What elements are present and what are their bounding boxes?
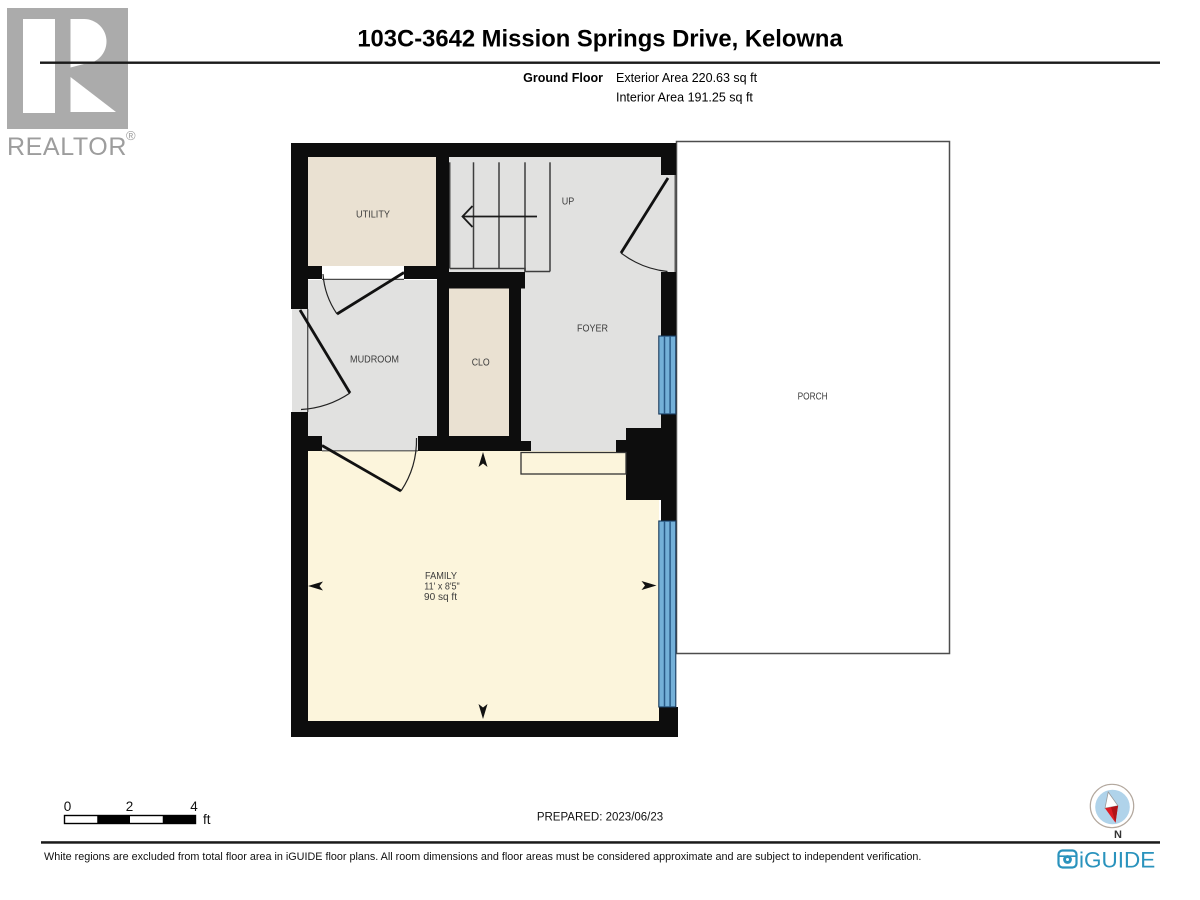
- svg-text:White regions are excluded fro: White regions are excluded from total fl…: [44, 851, 921, 863]
- svg-text:N: N: [1114, 829, 1122, 841]
- svg-text:103C-3642 Mission Springs Driv: 103C-3642 Mission Springs Drive, Kelowna: [357, 26, 843, 53]
- svg-text:90 sq ft: 90 sq ft: [424, 591, 457, 603]
- svg-text:ft: ft: [203, 812, 211, 827]
- svg-text:REALTOR: REALTOR: [7, 133, 127, 161]
- svg-text:PREPARED: 2023/06/23: PREPARED: 2023/06/23: [537, 812, 663, 824]
- svg-text:Ground Floor: Ground Floor: [523, 71, 603, 85]
- svg-text:iGUIDE: iGUIDE: [1079, 848, 1155, 873]
- svg-text:PORCH: PORCH: [798, 391, 828, 403]
- svg-text:MUDROOM: MUDROOM: [350, 354, 399, 366]
- svg-text:Interior Area 191.25 sq ft: Interior Area 191.25 sq ft: [616, 91, 753, 105]
- svg-text:FOYER: FOYER: [577, 323, 608, 335]
- svg-text:Exterior Area 220.63 sq ft: Exterior Area 220.63 sq ft: [616, 71, 758, 85]
- svg-text:2: 2: [126, 799, 134, 814]
- svg-text:0: 0: [64, 799, 72, 814]
- svg-text:UP: UP: [562, 196, 575, 208]
- svg-text:®: ®: [126, 128, 136, 143]
- svg-text:CLO: CLO: [472, 357, 490, 369]
- svg-text:4: 4: [190, 799, 198, 814]
- svg-text:UTILITY: UTILITY: [356, 209, 390, 221]
